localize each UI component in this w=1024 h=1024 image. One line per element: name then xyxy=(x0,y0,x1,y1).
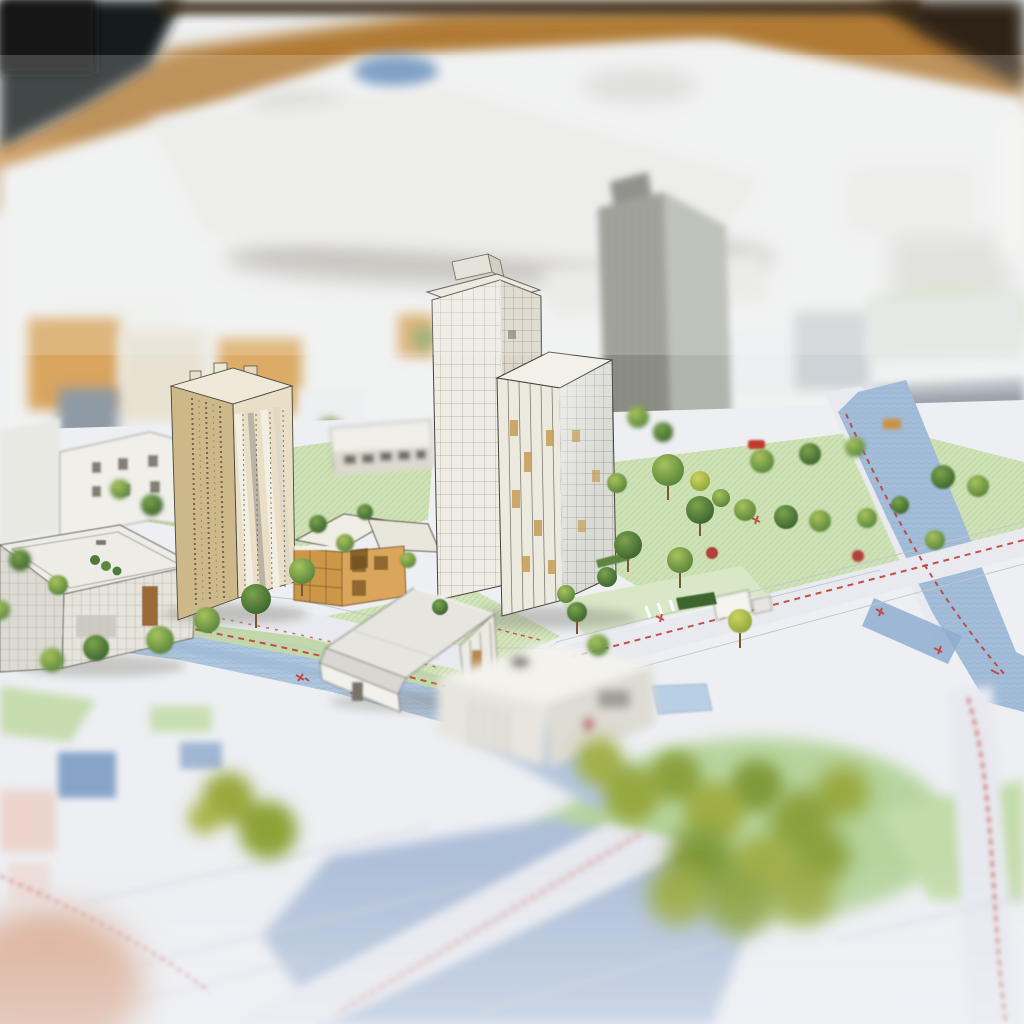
bottom-dof-wash xyxy=(0,860,1024,1024)
tree xyxy=(712,489,730,507)
tree xyxy=(597,567,617,587)
bush xyxy=(113,567,122,576)
tree xyxy=(146,626,174,654)
tree xyxy=(194,607,220,633)
tree xyxy=(289,558,315,584)
tree xyxy=(774,505,798,529)
tree xyxy=(400,552,416,568)
tree xyxy=(667,547,693,573)
bush xyxy=(101,561,111,571)
tree xyxy=(845,437,865,457)
flower-bush xyxy=(706,547,718,559)
canal-basin xyxy=(58,752,116,798)
tree xyxy=(690,471,710,491)
tree xyxy=(967,475,989,497)
tree xyxy=(241,584,271,614)
tree xyxy=(891,496,909,514)
tree xyxy=(607,473,627,493)
tree xyxy=(48,575,68,595)
red-car xyxy=(748,440,765,449)
lawn-patch xyxy=(150,706,212,732)
plan-pink-block xyxy=(0,790,56,852)
photo-city-model xyxy=(0,0,1024,1024)
tree xyxy=(627,406,649,428)
bush xyxy=(90,555,100,565)
tree xyxy=(309,515,327,533)
tree xyxy=(925,530,945,550)
tree xyxy=(432,599,448,615)
school-slab xyxy=(330,420,434,476)
orange-car xyxy=(883,419,901,429)
tree xyxy=(40,648,64,672)
tree xyxy=(587,634,609,656)
tree xyxy=(734,499,756,521)
mid-white-building-back xyxy=(0,418,60,545)
tree xyxy=(9,549,31,571)
tree xyxy=(110,479,130,499)
small-pond xyxy=(652,684,712,714)
tree xyxy=(336,534,354,552)
tree xyxy=(567,602,587,622)
tree xyxy=(799,443,821,465)
tree xyxy=(653,422,673,442)
commercial-door xyxy=(142,586,158,626)
backdrop-top-strip xyxy=(160,0,920,15)
tree xyxy=(686,496,714,524)
tree xyxy=(652,454,684,486)
tree xyxy=(728,609,752,633)
beige-tower xyxy=(171,363,295,620)
tree xyxy=(141,494,163,516)
background-fog xyxy=(0,55,1024,355)
tree xyxy=(83,635,109,661)
flower-bush xyxy=(852,550,864,562)
tree xyxy=(557,585,575,603)
tree xyxy=(357,504,373,520)
scene-canvas xyxy=(0,0,1024,1024)
tree xyxy=(931,465,955,489)
canal-basin xyxy=(180,742,222,769)
tree xyxy=(750,449,774,473)
tree xyxy=(809,510,831,532)
tree xyxy=(857,508,877,528)
tree xyxy=(614,531,642,559)
